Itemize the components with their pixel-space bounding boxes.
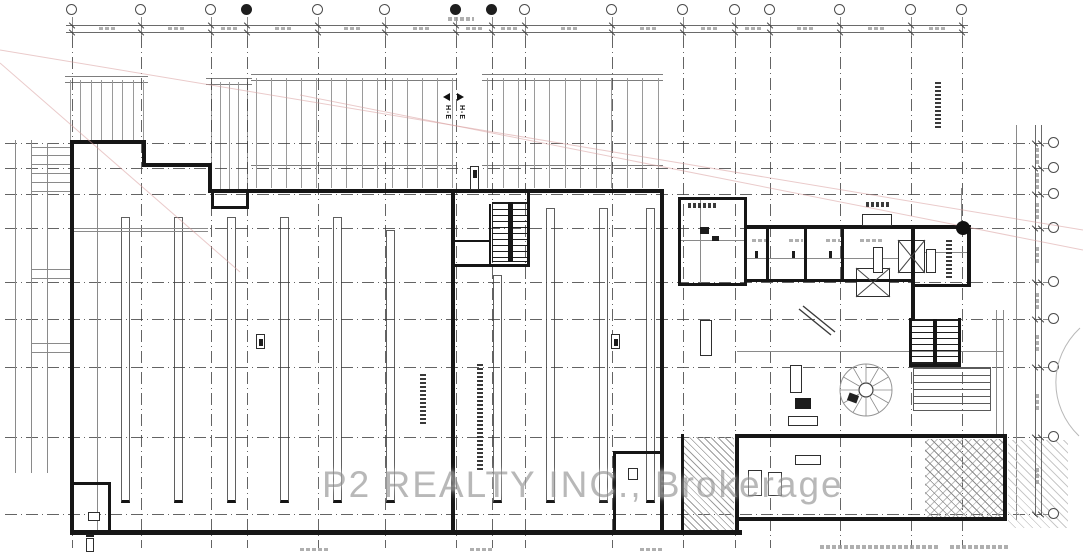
wall-segment (108, 482, 111, 533)
reference-line (31, 182, 70, 183)
grid-line-horizontal (5, 514, 1042, 515)
grid-line-horizontal (5, 168, 1042, 169)
grid-bubble (519, 4, 530, 15)
wall-segment (527, 189, 530, 267)
racking-strip (599, 208, 608, 503)
dock-rail (65, 82, 148, 83)
grid-bubble (66, 4, 77, 15)
dock-line (316, 78, 317, 188)
dimension-text-mark (1036, 247, 1039, 263)
racking-strip (121, 217, 130, 503)
spiral-stair-step (853, 396, 863, 412)
racking-strip (546, 208, 555, 503)
dimension-text-mark (501, 27, 517, 30)
dock-line (534, 78, 535, 188)
racking-strip (280, 217, 289, 503)
spiral-stair-mark (847, 393, 859, 404)
dock-line (143, 80, 144, 140)
dimension-text-mark (868, 27, 884, 30)
horizontal-annotation (866, 202, 890, 207)
reference-line (74, 231, 208, 232)
dock-line (549, 78, 550, 188)
wall-segment (508, 202, 513, 262)
dock-rail (65, 76, 148, 77)
racking-strip (333, 217, 342, 503)
dimension-text-mark (300, 548, 328, 551)
dimension-text-mark (466, 27, 482, 30)
wall-segment (70, 140, 74, 535)
dimension-text-mark (344, 27, 360, 30)
dimension-text-mark (221, 27, 237, 30)
wall-segment (142, 163, 212, 167)
grid-bubble (1048, 222, 1059, 233)
grid-bubble (905, 4, 916, 15)
dimension-text-mark (413, 27, 429, 30)
grid-bubble (1048, 361, 1059, 372)
horizontal-annotation (688, 203, 716, 208)
dock-line (112, 80, 113, 140)
wall-segment (841, 228, 844, 281)
spiral-stair-step (872, 377, 888, 387)
grid-bubble (486, 4, 497, 15)
dock-line (256, 78, 257, 188)
grid-bubble (956, 4, 967, 15)
grid-bubble (1048, 188, 1059, 199)
wall-segment (744, 197, 747, 286)
dock-rail (206, 78, 252, 79)
annotation-mark (473, 170, 477, 178)
dimension-text-mark (640, 27, 656, 30)
dimension-text-mark (929, 27, 945, 30)
reference-line (47, 143, 48, 473)
dock-rail (482, 74, 663, 75)
grid-bubble (135, 4, 146, 15)
dimension-text-mark (448, 17, 474, 21)
grid-line-horizontal (5, 319, 1042, 320)
annotation-mark (712, 236, 719, 241)
annotation-mark (259, 339, 263, 346)
dock-line (452, 78, 453, 188)
reference-line (700, 200, 701, 283)
reference-line (74, 228, 208, 229)
wall-segment (70, 530, 742, 535)
reference-line (31, 352, 70, 353)
dock-line (362, 78, 363, 188)
dock-line (422, 78, 423, 188)
wall-segment (747, 225, 971, 229)
fixture-rect (788, 416, 818, 426)
red-reference-line (0, 50, 1083, 230)
dimension-text-mark (701, 27, 717, 30)
dock-line (437, 78, 438, 188)
dimension-text-mark (826, 239, 840, 242)
spiral-stair-step (870, 367, 880, 383)
reference-line (961, 188, 962, 226)
dimension-text-mark (640, 548, 664, 551)
grid-bubble (205, 4, 216, 15)
wall-segment (489, 204, 491, 264)
hatch-area (925, 439, 1003, 517)
wall-segment (766, 228, 769, 281)
fixture-rect (790, 365, 802, 393)
dimension-text-mark (275, 27, 291, 30)
wall-segment (455, 240, 489, 242)
dock-rail (251, 74, 457, 75)
fixture-rect (88, 512, 100, 521)
hatch-area (1008, 440, 1068, 528)
dock-line (122, 80, 123, 140)
wall-segment (911, 225, 915, 321)
wall-segment (911, 284, 971, 287)
section-marker-label: H-E (442, 105, 451, 131)
wall-segment (933, 319, 937, 364)
dimension-text-mark (820, 545, 940, 549)
dimension-line (66, 32, 968, 33)
annotation-mark (792, 251, 795, 258)
fixture-rect (862, 214, 892, 226)
dock-line (80, 80, 81, 140)
fixture-rect (926, 249, 936, 273)
dimension-text-mark (1036, 173, 1039, 189)
wall-segment (1003, 434, 1007, 521)
dock-line (518, 78, 519, 188)
grid-line-horizontal (5, 194, 1042, 195)
dock-line (503, 78, 504, 188)
spiral-stair-step (843, 394, 859, 404)
vertical-annotation (935, 82, 941, 130)
dock-line (271, 78, 272, 188)
fixture-rect (873, 247, 883, 273)
fixture-rect (86, 538, 94, 552)
grid-line-vertical (318, 36, 319, 548)
reference-line (31, 147, 70, 148)
dock-line (220, 82, 221, 191)
wall-segment (909, 364, 961, 367)
wall-segment (451, 264, 530, 267)
dimension-text-mark (470, 548, 494, 551)
grid-bubble (1048, 313, 1059, 324)
spiral-stair-step (870, 396, 880, 412)
racking-strip (227, 217, 236, 503)
spiral-stair-outer (840, 364, 892, 416)
racking-strip (646, 208, 655, 503)
dimension-line (66, 25, 968, 26)
annotation-mark (795, 398, 811, 409)
dock-line (580, 78, 581, 188)
dock-line (133, 80, 134, 140)
annotation-mark (86, 534, 94, 537)
dimension-text-mark (789, 239, 803, 242)
annotation-mark (755, 251, 758, 258)
dimension-text-mark (745, 27, 761, 30)
stair-treads (913, 367, 991, 411)
grid-line-horizontal (5, 367, 1042, 368)
wall-segment (678, 197, 747, 200)
wall-segment (967, 225, 971, 287)
grid-bubble (729, 4, 740, 15)
wall-segment (70, 140, 146, 144)
dimension-text-mark (168, 27, 184, 30)
dock-line (487, 78, 488, 188)
grid-bubble (1048, 508, 1059, 519)
racking-strip (174, 217, 183, 503)
reference-line (31, 278, 70, 279)
reference-line (97, 143, 98, 531)
reference-line (15, 140, 16, 473)
reference-line (31, 191, 70, 192)
wall-segment (211, 206, 249, 209)
dock-line (286, 78, 287, 188)
floor-plan-canvas: P2 REALTY INC., Brokerage H-EH-E (0, 0, 1083, 559)
dock-line (101, 80, 102, 140)
section-marker-icon (457, 93, 464, 101)
wall-segment (747, 279, 913, 282)
grid-bubble (379, 4, 390, 15)
reference-line (747, 258, 911, 259)
wall-segment (613, 451, 661, 454)
grid-bubble (764, 4, 775, 15)
wall-segment (70, 482, 111, 485)
dimension-text-mark (1036, 394, 1039, 410)
grid-bubble (1048, 137, 1059, 148)
fixture-rect (700, 320, 712, 356)
dock-line (238, 82, 239, 191)
grid-line-vertical (141, 36, 142, 548)
wall-segment (678, 197, 681, 286)
dimension-text-mark (1036, 148, 1039, 164)
dimension-text-mark (797, 27, 813, 30)
dock-rail (482, 165, 663, 166)
dimension-text-mark (561, 27, 577, 30)
dimension-text-mark (1036, 335, 1039, 351)
annotation-mark (700, 227, 709, 234)
dock-line (658, 78, 659, 188)
dimension-text-mark (1036, 293, 1039, 309)
dimension-text-mark (99, 27, 115, 30)
grid-bubble (1048, 431, 1059, 442)
dimension-text-mark (1036, 468, 1039, 484)
dock-rail (251, 80, 457, 81)
dock-line (346, 78, 347, 188)
annotation-mark (614, 339, 618, 346)
dock-line (627, 78, 628, 188)
wall-segment (735, 517, 1005, 521)
watermark-text: P2 REALTY INC., Brokerage (322, 464, 844, 506)
grid-bubble (1048, 276, 1059, 287)
wall-segment (678, 283, 747, 286)
dock-line (565, 78, 566, 188)
dock-line (407, 78, 408, 188)
dock-line (392, 78, 393, 188)
vertical-annotation (477, 364, 483, 470)
grid-line-vertical (211, 36, 212, 548)
dock-line (70, 80, 71, 140)
reference-line (31, 343, 70, 344)
dimension-text-mark (1036, 203, 1039, 219)
wall-segment (804, 228, 807, 281)
grid-bubble (677, 4, 688, 15)
dock-line (642, 78, 643, 188)
dock-rail (482, 80, 663, 81)
wall-segment (909, 318, 912, 367)
reference-line (31, 140, 32, 473)
dimension-text-mark (752, 239, 766, 242)
vertical-annotation (946, 240, 952, 280)
dock-line (301, 78, 302, 188)
spiral-stair-core (859, 383, 873, 397)
reference-line (996, 310, 997, 434)
spiral-stair-step (853, 367, 863, 383)
dock-line (331, 78, 332, 188)
spiral-stair-step (843, 377, 859, 387)
dock-line (229, 82, 230, 191)
reference-line (31, 269, 70, 270)
grid-bubble (241, 4, 252, 15)
dock-line (377, 78, 378, 188)
wall-segment (208, 189, 664, 193)
dimension-text-mark (950, 545, 1010, 549)
section-marker-icon (443, 93, 450, 101)
dock-rail (251, 165, 457, 166)
reference-line (737, 351, 1003, 352)
reference-line (31, 155, 70, 156)
driveway-arc (1056, 328, 1080, 436)
grid-bubble (606, 4, 617, 15)
grid-bubble (312, 4, 323, 15)
dock-line (596, 78, 597, 188)
reference-line (1003, 310, 1004, 434)
dock-line (91, 80, 92, 140)
annotation-mark (829, 251, 832, 258)
wall-segment (958, 318, 961, 367)
grid-bubble (834, 4, 845, 15)
dimension-text-mark (860, 239, 882, 242)
vertical-annotation (420, 374, 426, 424)
reference-line (31, 173, 70, 174)
grid-bubble (1048, 162, 1059, 173)
wall-segment (735, 434, 1007, 438)
grid-line-horizontal (5, 143, 1042, 144)
diagonal-object-line (799, 309, 831, 335)
grid-line-vertical (247, 36, 248, 548)
grid-bubble (450, 4, 461, 15)
section-marker-label: H-E (456, 105, 465, 131)
spiral-stair-step (872, 394, 888, 404)
reference-line (31, 164, 70, 165)
